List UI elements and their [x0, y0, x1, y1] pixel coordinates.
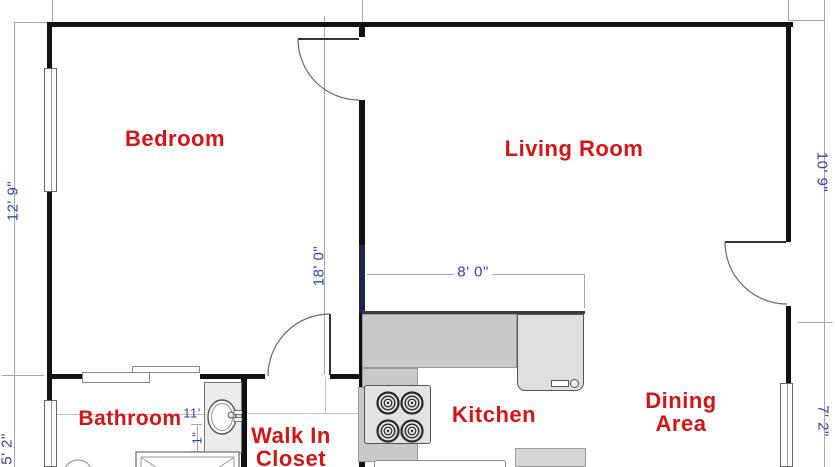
closet-shelf-line-horizontal — [248, 413, 360, 414]
dim-line-left — [14, 22, 15, 467]
dim-tick-right-top — [788, 20, 824, 21]
dim-label-right-lower: 7' 2" — [815, 405, 832, 437]
room-label-living: Living Room — [505, 136, 644, 162]
door-dining-exterior — [725, 242, 787, 304]
dim-tick-kitchen-width — [584, 274, 585, 308]
wall-right-upper — [786, 22, 791, 242]
window-dining — [780, 383, 793, 467]
refrigerator-knob — [570, 379, 579, 388]
dim-label-left-upper: 12' 9" — [5, 181, 22, 221]
toilet — [64, 460, 92, 467]
floor-plan: Bedroom Living Room Bathroom Walk InClos… — [0, 0, 835, 467]
dim-line-right — [824, 21, 825, 467]
door-bedroom-bathroom — [268, 314, 330, 376]
dim-tick-left-mid — [2, 375, 44, 376]
dim-tick-top-left — [52, 0, 53, 22]
dim-tick-left-top — [14, 22, 48, 23]
door-bedroom-living — [298, 39, 359, 100]
room-label-kitchen: Kitchen — [452, 402, 536, 428]
dim-tick-top-right — [788, 0, 789, 21]
dim-tick-bathroom-offset-bottom — [191, 451, 202, 452]
dim-label-right-upper: 10' 9" — [814, 152, 831, 192]
wall-bathroom-top-c — [330, 374, 362, 379]
dim-label-bathroom-offset: 1" — [190, 432, 205, 445]
kitchen-counter-bottom-right — [515, 448, 586, 467]
dim-label-left-lower: 5' 2" — [0, 433, 16, 465]
dim-tick-bathroom-offset-top — [191, 424, 202, 425]
room-label-closet: Walk InCloset — [251, 424, 331, 467]
dim-label-center-vertical: 18' 0" — [311, 246, 328, 286]
bathtub — [136, 452, 239, 467]
dim-label-bathroom-width: 11' — [183, 406, 200, 421]
refrigerator-handle — [551, 380, 569, 387]
window-bathroom — [44, 400, 57, 467]
kitchen-counter-band — [362, 314, 517, 368]
stove — [364, 385, 431, 444]
room-label-dining: DiningArea — [645, 389, 716, 435]
room-label-bathroom: Bathroom — [78, 407, 181, 431]
dim-line-center — [324, 16, 325, 375]
window-bedroom — [44, 68, 57, 192]
closet-shelf-line-vertical — [325, 377, 326, 414]
sink-counter — [204, 382, 242, 453]
room-label-bedroom: Bedroom — [125, 126, 225, 152]
dim-tick-right-mid — [798, 322, 833, 323]
sliding-door-panel-inner — [82, 372, 150, 383]
dim-tick-top-far-right — [824, 0, 825, 21]
kitchen-island-edge — [374, 460, 506, 467]
wall-bathroom-top-b — [200, 374, 265, 379]
wall-top — [47, 22, 793, 27]
wall-center-accent — [359, 245, 365, 313]
wall-center-stub — [359, 22, 365, 37]
wall-bathroom-top-a — [47, 374, 82, 379]
dim-label-kitchen-width: 8' 0" — [454, 264, 492, 281]
